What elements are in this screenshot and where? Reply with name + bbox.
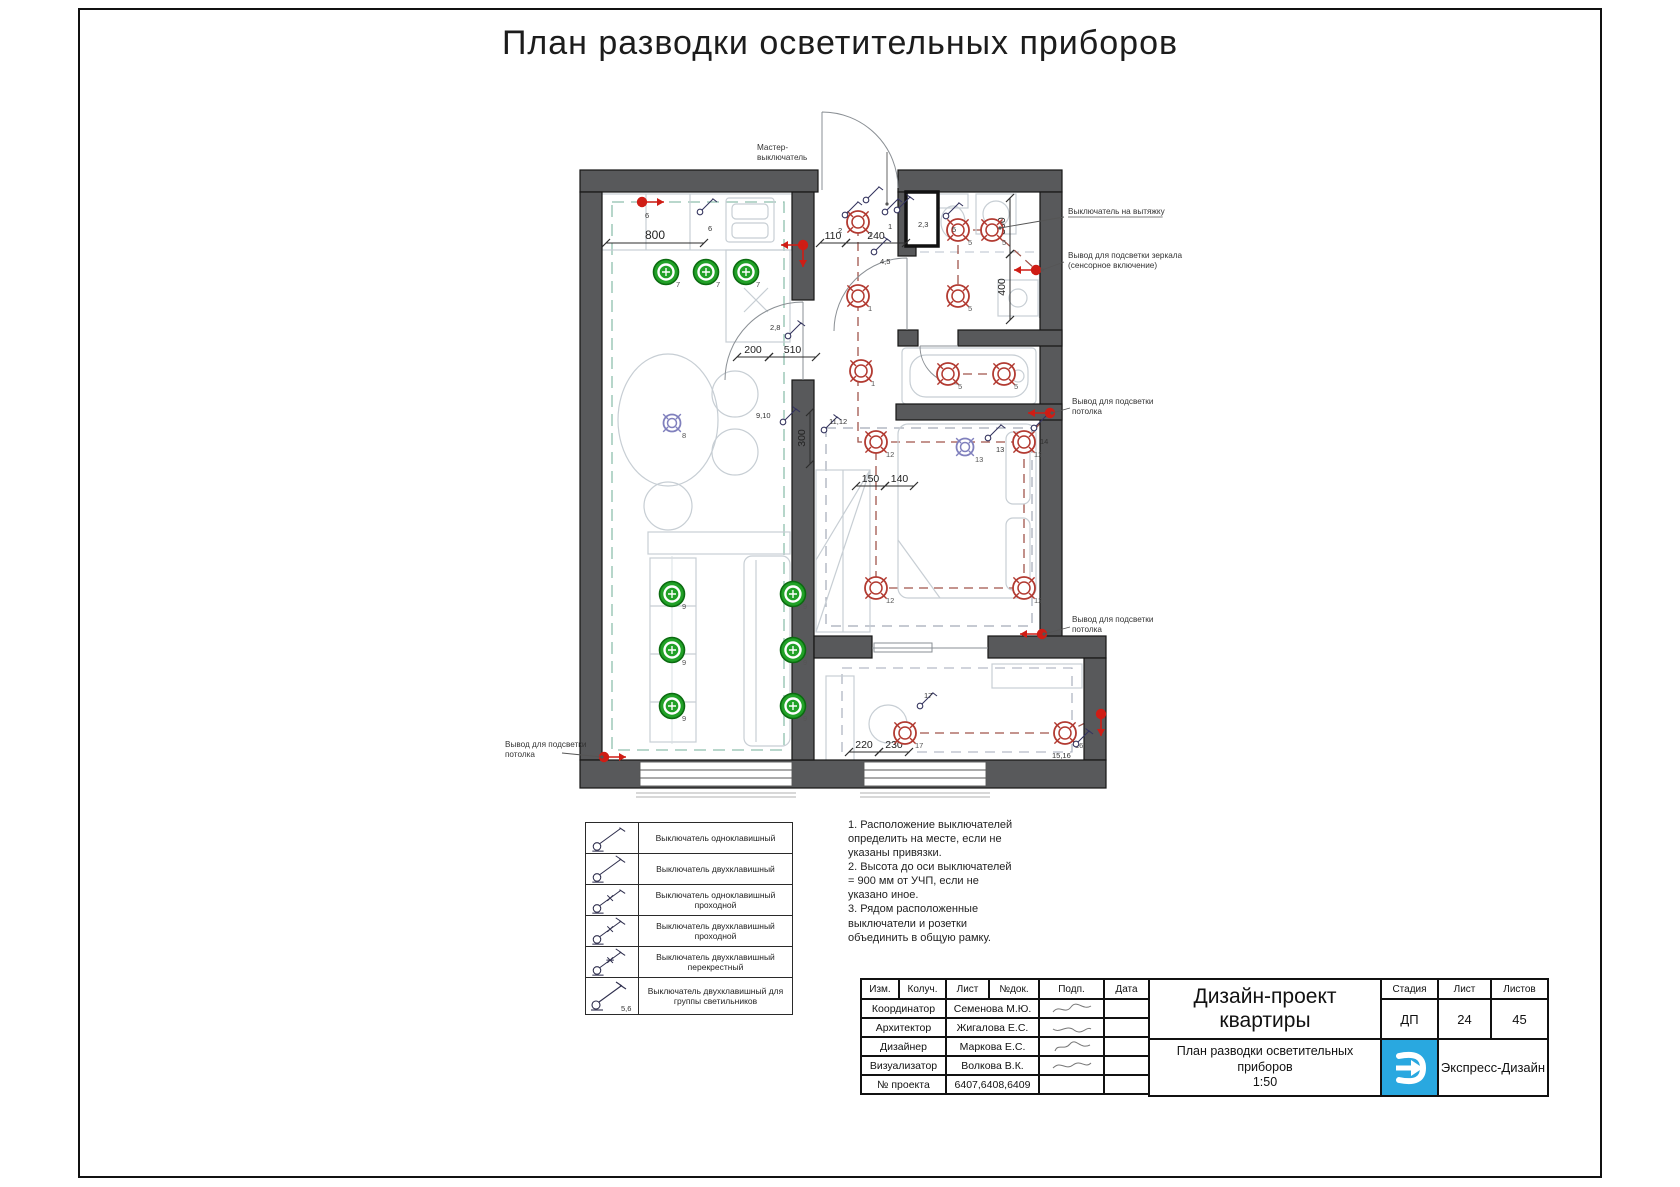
tb-stage-value: ДП xyxy=(1380,998,1439,1040)
tb-sheet-header: Лист xyxy=(1437,978,1492,1000)
svg-text:6: 6 xyxy=(708,224,712,233)
tb-role: Архитектор xyxy=(860,1017,947,1038)
tb-signature xyxy=(1038,1074,1105,1095)
legend-row-label: Выключатель одноклавишный xyxy=(639,823,792,853)
svg-text:7: 7 xyxy=(716,280,720,289)
svg-text:220: 220 xyxy=(855,739,873,751)
annotation: Выключатель на вытяжку xyxy=(998,207,1165,230)
svg-text:11,12: 11,12 xyxy=(829,417,847,426)
svg-text:13: 13 xyxy=(975,455,983,464)
switch-symbol-icon xyxy=(586,854,639,884)
legend-table: Выключатель одноклавишныйВыключатель дву… xyxy=(585,822,793,1015)
svg-text:510: 510 xyxy=(784,344,802,356)
svg-text:800: 800 xyxy=(645,228,665,242)
tb-role: Координатор xyxy=(860,998,947,1019)
switch-symbol-icon xyxy=(586,885,639,915)
svg-text:7: 7 xyxy=(756,280,760,289)
tb-company: Экспресс-Дизайн xyxy=(1437,1038,1549,1097)
svg-text:400: 400 xyxy=(996,278,1008,296)
legend-row-label: Выключатель одноклавишный проходной xyxy=(639,885,792,915)
legend-row: Выключатель двухклавишный проходной xyxy=(586,916,792,947)
tb-role: Визуализатор xyxy=(860,1055,947,1076)
svg-text:140: 140 xyxy=(891,473,909,485)
legend-row: 5,6Выключатель двухклавишный для группы … xyxy=(586,978,792,1014)
svg-text:1: 1 xyxy=(868,230,872,239)
light-symbol-red: 5 xyxy=(947,285,972,313)
svg-text:9: 9 xyxy=(682,658,686,667)
tb-sheets-value: 45 xyxy=(1490,998,1549,1040)
svg-text:5: 5 xyxy=(968,238,972,247)
tb-header-list: Лист xyxy=(945,978,990,1000)
dimension: 800 xyxy=(602,228,708,247)
switch-symbol-icon xyxy=(586,823,639,853)
svg-text:9,10: 9,10 xyxy=(756,411,771,420)
svg-text:5: 5 xyxy=(1014,382,1018,391)
svg-text:2,8: 2,8 xyxy=(770,323,780,332)
svg-text:7: 7 xyxy=(676,280,680,289)
wall-output-dot: 6 xyxy=(637,197,664,220)
tb-role: № проекта xyxy=(860,1074,947,1095)
light-symbol-red: 5 xyxy=(993,363,1018,391)
tb-date xyxy=(1103,1074,1150,1095)
svg-text:150: 150 xyxy=(862,473,880,485)
tb-header-ndok: №док. xyxy=(988,978,1040,1000)
svg-text:14: 14 xyxy=(1040,437,1048,446)
tb-signature xyxy=(1038,1055,1105,1076)
tb-project-title: Дизайн-проект квартиры xyxy=(1148,978,1382,1040)
switch-symbol: 2,8 xyxy=(770,321,805,339)
svg-text:Вывод для подсветки: Вывод для подсветки xyxy=(1072,615,1153,624)
light-symbol-red: 1 xyxy=(847,211,872,239)
legend-row: Выключатель одноклавишный проходной xyxy=(586,885,792,916)
tb-header-podp: Подп. xyxy=(1038,978,1105,1000)
light-symbol-red: 1 xyxy=(850,360,875,388)
tb-name: 6407,6408,6409 xyxy=(945,1074,1040,1095)
svg-text:13: 13 xyxy=(996,445,1004,454)
tb-date xyxy=(1103,1055,1150,1076)
light-symbol-green: 9 xyxy=(660,694,687,724)
svg-text:потолка: потолка xyxy=(1072,625,1102,634)
svg-text:200: 200 xyxy=(744,344,762,356)
note-item: 3. Рядом расположенные выключатели и роз… xyxy=(848,902,1020,944)
svg-text:5: 5 xyxy=(1002,238,1006,247)
light-symbol-red: 12 xyxy=(1013,431,1042,459)
svg-text:8: 8 xyxy=(682,431,686,440)
svg-text:6: 6 xyxy=(645,211,649,220)
light-symbol-red: 1 xyxy=(847,285,872,313)
switch-symbol xyxy=(863,187,883,203)
tb-header-data: Дата xyxy=(1103,978,1150,1000)
svg-text:12: 12 xyxy=(1034,450,1042,459)
shaft-box xyxy=(906,192,938,246)
svg-text:17: 17 xyxy=(915,741,923,750)
svg-text:9: 9 xyxy=(803,658,807,667)
annotations-layer: Мастер-выключательВыключатель на вытяжку… xyxy=(505,143,1183,759)
tb-signature xyxy=(1038,1017,1105,1038)
svg-text:9: 9 xyxy=(803,714,807,723)
svg-text:300: 300 xyxy=(796,429,808,447)
tb-name: Волкова В.К. xyxy=(945,1055,1040,1076)
light-symbol-red: 12 xyxy=(865,431,894,459)
annotation: Вывод для подсветкипотолка xyxy=(1050,397,1153,416)
svg-text:Выключатель на вытяжку: Выключатель на вытяжку xyxy=(1068,207,1166,216)
legend-row-label: Выключатель двухклавишный проходной xyxy=(639,916,792,946)
tb-header-koluch: Колуч. xyxy=(898,978,947,1000)
switch-symbol: 17 xyxy=(917,691,937,709)
logo-arrow-icon xyxy=(1389,1047,1431,1089)
tb-date xyxy=(1103,1036,1150,1057)
legend-row-label: Выключатель двухклавишный перекрестный xyxy=(639,947,792,977)
legend-row: Выключатель двухклавишный xyxy=(586,854,792,885)
legend-row: Выключатель одноклавишный xyxy=(586,823,792,854)
svg-text:Вывод для подсветки: Вывод для подсветки xyxy=(1072,397,1153,406)
light-symbol-blue: 8 xyxy=(663,414,686,440)
switch-symbol: 6 xyxy=(697,199,717,234)
tb-name: Маркова Е.С. xyxy=(945,1036,1040,1057)
light-symbol-red: 12 xyxy=(1013,577,1042,605)
light-symbol-red: 5 xyxy=(947,219,972,247)
svg-text:потолка: потолка xyxy=(1072,407,1102,416)
light-symbol-red: 5 xyxy=(937,363,962,391)
legend-row-label: Выключатель двухклавишный для группы све… xyxy=(639,978,792,1014)
title-block: Изм. Колуч. Лист №док. Подп. Дата Коорди… xyxy=(860,978,1549,1097)
svg-text:5: 5 xyxy=(952,225,956,234)
legend-row-label: Выключатель двухклавишный xyxy=(639,854,792,884)
svg-text:(сенсорное включение): (сенсорное включение) xyxy=(1068,261,1157,270)
switch-symbol-icon: 5,6 xyxy=(586,978,639,1014)
svg-text:Мастер-: Мастер- xyxy=(757,143,788,152)
company-logo xyxy=(1380,1038,1439,1097)
switch-symbol: 13 xyxy=(985,425,1005,455)
dimension: 510 xyxy=(765,344,820,361)
svg-text:выключатель: выключатель xyxy=(757,153,807,162)
svg-text:1: 1 xyxy=(868,304,872,313)
svg-text:15,16: 15,16 xyxy=(1052,751,1071,760)
light-symbol-blue: 13 xyxy=(956,438,983,464)
switch-symbol-icon xyxy=(586,916,639,946)
svg-text:5: 5 xyxy=(958,382,962,391)
svg-text:9: 9 xyxy=(682,714,686,723)
light-symbol-green: 7 xyxy=(654,260,681,290)
tb-sheet-value: 24 xyxy=(1437,998,1492,1040)
light-symbol-green: 7 xyxy=(694,260,721,290)
dimension: 400 xyxy=(996,250,1014,324)
svg-text:17: 17 xyxy=(924,691,932,700)
tb-stage-header: Стадия xyxy=(1380,978,1439,1000)
light-symbol-green: 9 xyxy=(660,638,687,668)
svg-text:2,3: 2,3 xyxy=(918,220,928,229)
svg-text:12: 12 xyxy=(886,596,894,605)
legend-row: Выключатель двухклавишный перекрестный xyxy=(586,947,792,978)
svg-text:1: 1 xyxy=(888,222,892,231)
tb-date xyxy=(1103,1017,1150,1038)
svg-text:Вывод для подсветки зеркала: Вывод для подсветки зеркала xyxy=(1068,251,1183,260)
svg-text:1: 1 xyxy=(871,379,875,388)
svg-text:9: 9 xyxy=(803,602,807,611)
dimension: 140 xyxy=(881,473,918,490)
svg-text:12: 12 xyxy=(1034,596,1042,605)
switch-symbol: 11,12 xyxy=(821,415,847,433)
tb-sheets-header: Листов xyxy=(1490,978,1549,1000)
tb-signature xyxy=(1038,1036,1105,1057)
wall-output-dot xyxy=(1014,265,1041,275)
note-item: 1. Расположение выключателей определить … xyxy=(848,818,1020,860)
tb-signature xyxy=(1038,998,1105,1019)
svg-text:Вывод для подсветки: Вывод для подсветки xyxy=(505,740,586,749)
tb-name: Семенова М.Ю. xyxy=(945,998,1040,1019)
note-item: 2. Высота до оси выключателей = 900 мм о… xyxy=(848,860,1020,902)
light-symbol-green: 7 xyxy=(734,260,761,290)
switch-symbol-icon xyxy=(586,947,639,977)
tb-header-izm: Изм. xyxy=(860,978,900,1000)
svg-text:потолка: потолка xyxy=(505,750,535,759)
svg-text:4,5: 4,5 xyxy=(880,257,890,266)
tb-date xyxy=(1103,998,1150,1019)
svg-text:9: 9 xyxy=(682,602,686,611)
tb-name: Жигалова Е.С. xyxy=(945,1017,1040,1038)
svg-text:2: 2 xyxy=(838,226,842,235)
notes-block: 1. Расположение выключателей определить … xyxy=(848,818,1020,945)
tb-sheet-title: План разводки осветительных приборов 1:5… xyxy=(1148,1038,1382,1097)
svg-text:12: 12 xyxy=(886,450,894,459)
svg-text:5: 5 xyxy=(968,304,972,313)
tb-role: Дизайнер xyxy=(860,1036,947,1057)
svg-text:5,6: 5,6 xyxy=(621,1004,631,1013)
